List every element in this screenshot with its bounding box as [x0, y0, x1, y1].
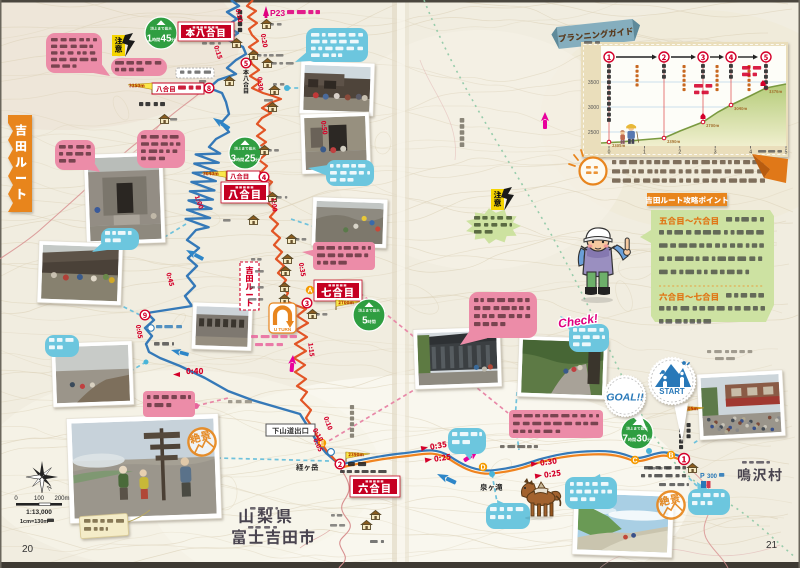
svg-text:3: 3 — [714, 150, 717, 156]
svg-text:30: 30 — [636, 434, 647, 445]
svg-text:GOAL!!: GOAL!! — [606, 392, 644, 404]
svg-text:2: 2 — [678, 150, 681, 156]
svg-text:B: B — [668, 453, 673, 460]
svg-text:1: 1 — [147, 34, 153, 45]
svg-text:100: 100 — [34, 496, 45, 502]
svg-text:U TURN: U TURN — [274, 327, 292, 332]
svg-text:3: 3 — [231, 154, 237, 165]
svg-text:5: 5 — [785, 150, 788, 156]
svg-text:7: 7 — [623, 434, 629, 445]
svg-text:25: 25 — [245, 154, 256, 165]
svg-text:300: 300 — [707, 474, 718, 480]
svg-text:20: 20 — [22, 544, 34, 555]
svg-text:1cm=130m: 1cm=130m — [20, 519, 48, 525]
svg-text:3000: 3000 — [588, 105, 599, 111]
svg-text:P: P — [700, 473, 705, 480]
svg-text:C: C — [632, 458, 637, 465]
svg-text:P23: P23 — [270, 8, 285, 18]
svg-text:5: 5 — [362, 316, 368, 327]
svg-text:START: START — [659, 387, 685, 396]
svg-text:3500: 3500 — [588, 80, 599, 86]
svg-text:21: 21 — [766, 540, 778, 551]
svg-text:4: 4 — [749, 150, 752, 156]
svg-text:1:13,000: 1:13,000 — [26, 509, 52, 516]
svg-text:D: D — [480, 465, 485, 472]
svg-text:200m: 200m — [54, 496, 69, 502]
svg-text:2500: 2500 — [588, 130, 599, 136]
svg-text:A: A — [307, 288, 312, 295]
svg-text:0: 0 — [608, 150, 611, 156]
svg-text:1: 1 — [643, 150, 646, 156]
svg-text:45: 45 — [161, 34, 172, 45]
